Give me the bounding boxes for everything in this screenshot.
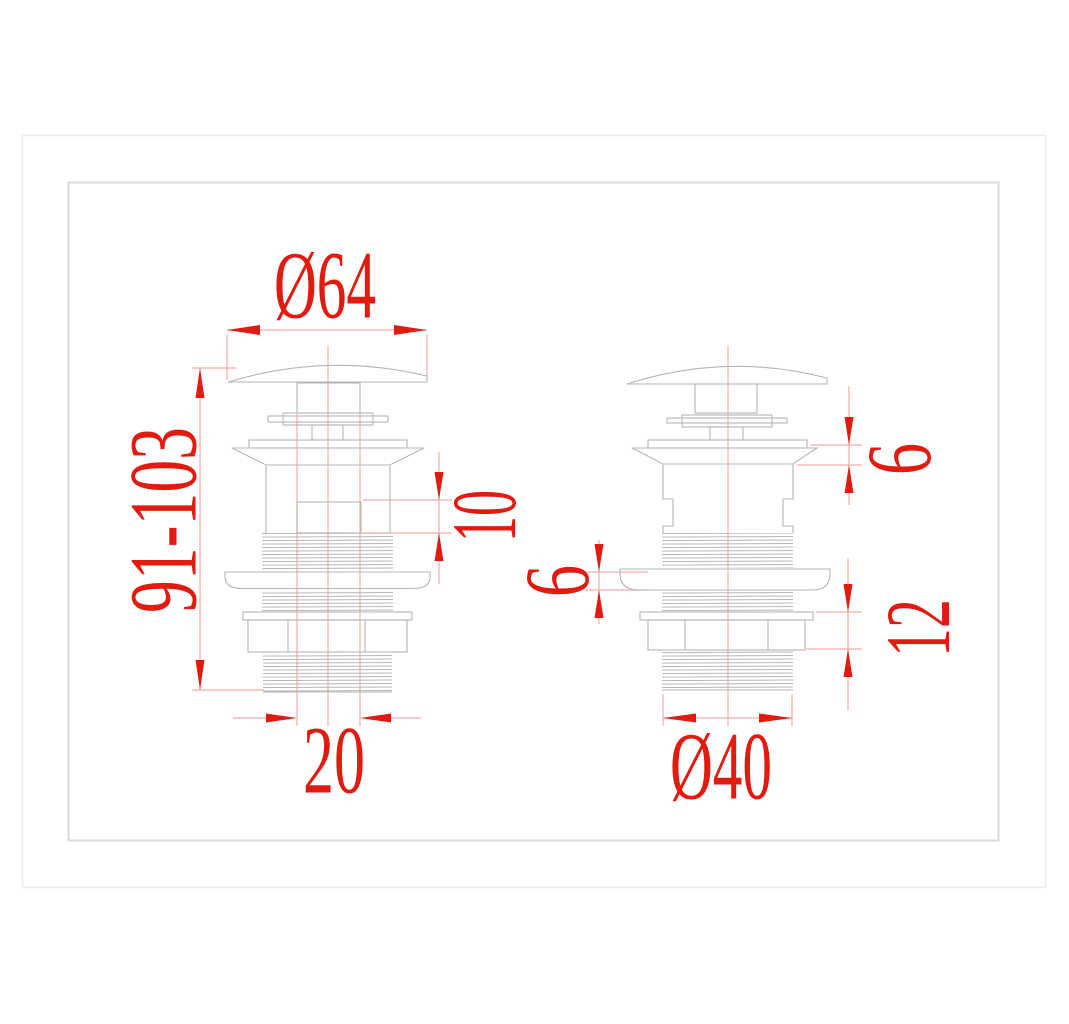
lower-stem (710, 427, 743, 440)
locknut-washer (640, 612, 813, 620)
height-arrow-bottom (196, 660, 205, 690)
seal-disc-core (682, 415, 772, 427)
dim-overflow-slot: 10 (433, 490, 535, 542)
dim-outlet-thread-diameter: Ø40 (670, 713, 772, 820)
thread-upper (662, 533, 793, 568)
locknut-facets (288, 620, 365, 652)
dim-top-flange-height: 6 (848, 443, 950, 475)
thread-upper (262, 533, 393, 570)
push-stem (695, 384, 757, 413)
locknut-facets (685, 620, 768, 650)
dim-overall-height: 91-103 (110, 427, 217, 613)
dimension-labels: Ø64 91-103 10 6 6 12 20 Ø40 (110, 232, 970, 820)
cap-arrow-right (394, 325, 427, 335)
dim-cap-diameter: Ø64 (274, 232, 376, 339)
flange-cone (632, 448, 817, 464)
thread-lower (662, 651, 793, 690)
washer-flange (620, 569, 830, 590)
locknut-arrow-bottom (844, 649, 853, 677)
right-drain-view (620, 366, 830, 690)
thread-middle (662, 591, 793, 611)
cap-arrow-left (227, 325, 260, 335)
cap-outline (627, 366, 827, 384)
height-arrow-top (196, 368, 205, 398)
thread-lower (263, 653, 392, 692)
overflow-slot (297, 502, 361, 533)
seal-disc-plate (667, 418, 787, 423)
stem-arrow-left (266, 714, 297, 723)
dim-locknut-height: 12 (867, 599, 969, 657)
technical-drawing: Ø64 91-103 10 6 6 12 20 Ø40 (0, 0, 1069, 1024)
flange-arrow-top (845, 417, 854, 445)
dim-outlet-stem-width: 20 (303, 707, 365, 814)
dim-washer-thickness: 6 (506, 565, 608, 597)
locknut-body (648, 620, 805, 650)
locknut-arrow-top (844, 584, 853, 612)
thread-middle (262, 591, 393, 611)
